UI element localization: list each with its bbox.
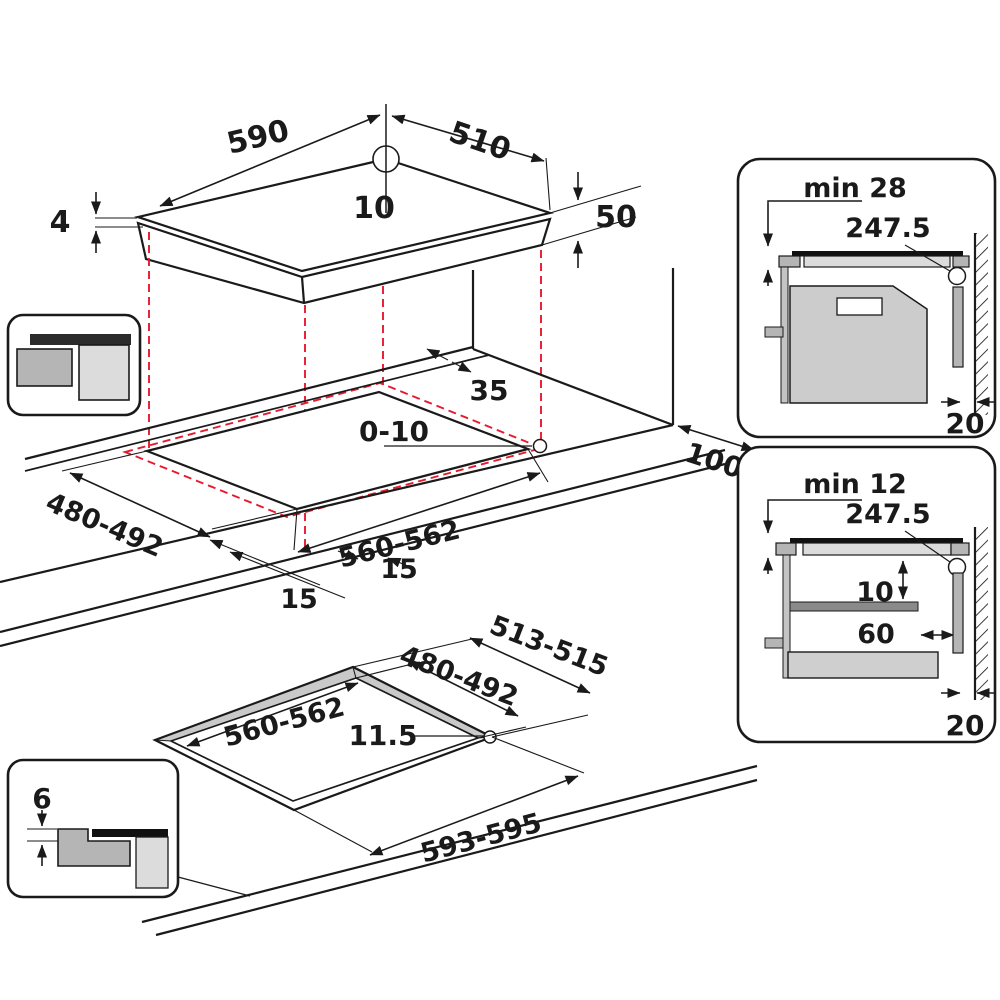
dim-label-hob-width: 590 (224, 113, 293, 162)
installation-diagram: 590 510 10 4 50 (0, 0, 1000, 1000)
dim-label-rear-offset: 10 (353, 191, 395, 226)
inset-2-leader (178, 877, 250, 896)
panel-1-left-trim (779, 256, 800, 267)
hob-isometric-view: 590 510 10 4 50 (50, 104, 641, 303)
panel-1-hob-body (804, 256, 950, 267)
dim-label-flush-outer-width: 593-595 (417, 807, 545, 869)
dim-label-cutout-depth: 480-492 (41, 487, 167, 564)
dim-label-min-clearance-drawer: min 12 (803, 469, 907, 500)
panel-1-wall-hatch (976, 233, 988, 415)
oven-clearance-panel: min 28 247.5 20 (738, 159, 995, 440)
panel-2-hob-body (803, 543, 951, 555)
panel-1-hinge-tab (765, 327, 783, 337)
inset-1-cabinet-block (79, 345, 129, 400)
worktop-cutout-opening (147, 392, 528, 509)
inset-2-glass-bar (92, 829, 168, 837)
panel-2-left-trim (776, 543, 796, 555)
dim-label-overhang-front: 15 (280, 584, 318, 615)
panel-2-hinge-tab (765, 638, 783, 648)
diagram-canvas: 590 510 10 4 50 (0, 0, 1000, 1000)
panel-1-right-trim (953, 256, 969, 267)
dim-label-edge-gap: 0-10 (359, 415, 429, 448)
inset-2-hob-body (136, 837, 168, 888)
panel-2-rear-spacer (953, 573, 963, 653)
dim-label-min-clearance-oven: min 28 (803, 173, 907, 204)
dim-label-build-in-height: 50 (595, 200, 637, 235)
panel-2-right-trim (951, 543, 969, 555)
dim-label-overhang-side: 15 (380, 554, 418, 585)
dim-label-glass-thickness: 4 (50, 205, 71, 240)
dim-label-flush-corner-radius: 11.5 (348, 719, 417, 752)
panel-1-cable-circle (949, 268, 966, 285)
hob-over-oven-inset (8, 315, 140, 415)
dim-label-rear-gap-oven: 20 (946, 407, 985, 440)
inset-1-glass-bar (30, 334, 131, 345)
drawer-clearance-panel: min 12 247.5 10 60 20 (738, 447, 995, 742)
dim-label-rear-gap-drawer: 20 (946, 709, 985, 742)
dim-label-cable-drawer: 247.5 (845, 499, 930, 530)
flush-section-inset: 6 (8, 760, 250, 897)
panel-2-shelf (790, 602, 918, 611)
panel-2-drawer-front (788, 652, 938, 678)
panel-1-oven-vent (837, 298, 882, 315)
dim-label-cable-oven: 247.5 (845, 213, 930, 244)
dim-label-hob-depth: 510 (445, 115, 516, 168)
dim-label-shelf-setback: 60 (857, 619, 895, 650)
panel-2-wall-hatch (976, 527, 988, 700)
panel-1-rear-spacer (953, 287, 963, 367)
dim-label-flush-outer-depth: 513-515 (485, 610, 612, 683)
inset-1-oven-block (17, 349, 72, 386)
edge-gap-circle (534, 440, 547, 453)
dim-label-rear-clearance: 35 (470, 374, 509, 407)
